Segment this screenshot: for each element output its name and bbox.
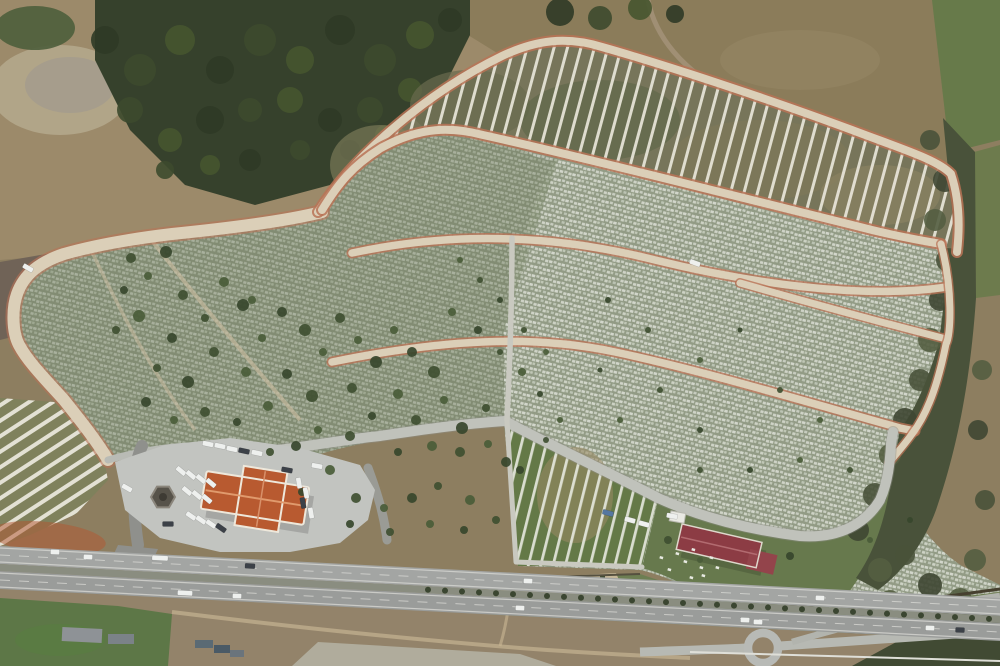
container xyxy=(214,645,230,653)
gazebo xyxy=(151,487,175,508)
shed xyxy=(108,634,134,644)
container xyxy=(195,640,213,648)
container xyxy=(230,650,244,657)
shed xyxy=(62,627,103,643)
aerial-photo xyxy=(0,0,1000,666)
aerial-photo-canvas xyxy=(0,0,1000,666)
